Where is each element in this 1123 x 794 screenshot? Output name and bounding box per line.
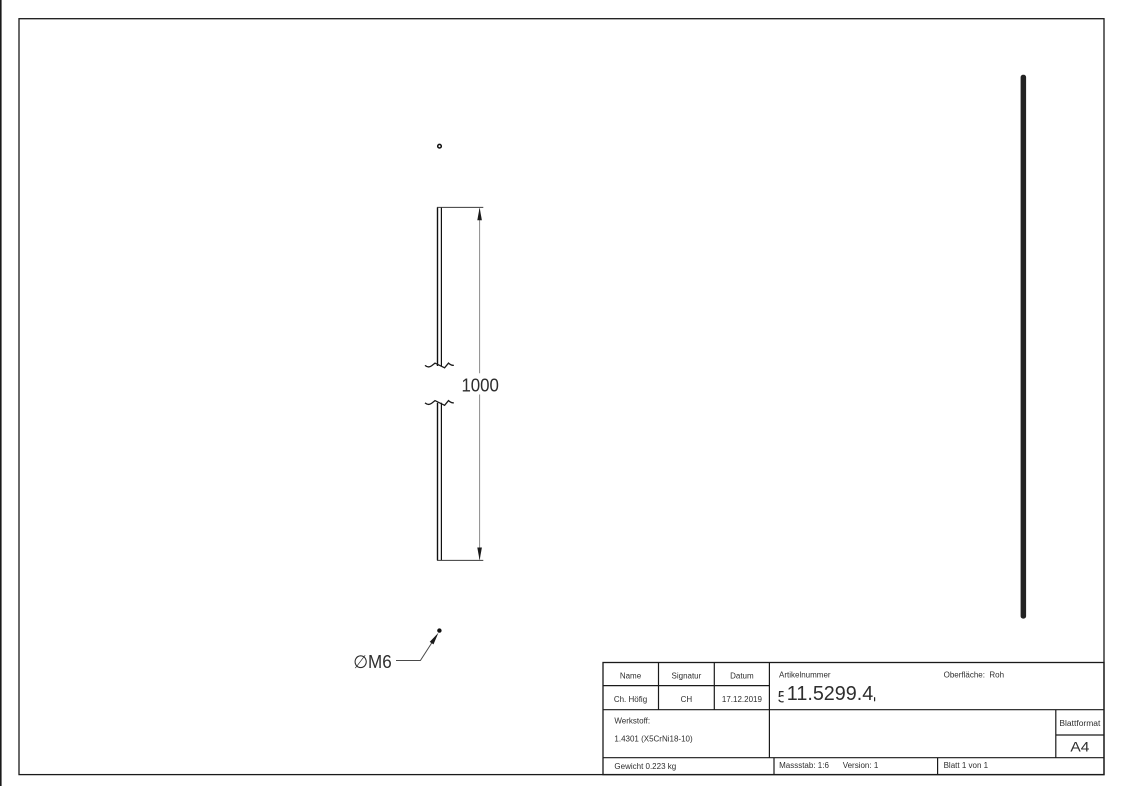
svg-text:11.5299.4: 11.5299.4	[787, 682, 874, 705]
svg-text:1000: 1000	[461, 375, 499, 395]
svg-text:Version: 1: Version: 1	[843, 761, 879, 770]
svg-text:17.12.2019: 17.12.2019	[722, 695, 763, 704]
svg-text:Ch. Höfig: Ch. Höfig	[614, 695, 647, 704]
svg-text:A4: A4	[1070, 739, 1089, 755]
svg-text:Name: Name	[620, 672, 642, 681]
svg-text:Signatur: Signatur	[672, 672, 702, 681]
svg-text:Werkstoff:: Werkstoff:	[614, 716, 650, 725]
svg-text:Oberfläche: Roh: Oberfläche: Roh	[944, 671, 1004, 680]
svg-text:Artikelnummer: Artikelnummer	[779, 671, 831, 680]
svg-text:∅M6: ∅M6	[353, 652, 392, 672]
svg-text:Blatt 1 von 1: Blatt 1 von 1	[944, 761, 989, 770]
svg-text:Gewicht 0.223 kg: Gewicht 0.223 kg	[614, 762, 676, 771]
svg-text:1.4301 (X5CrNi18-10): 1.4301 (X5CrNi18-10)	[614, 735, 693, 744]
svg-text:Blattformat: Blattformat	[1059, 719, 1101, 728]
svg-text:CH: CH	[681, 695, 693, 704]
svg-text:Massstab: 1:6: Massstab: 1:6	[779, 761, 829, 770]
svg-text:Datum: Datum	[730, 672, 754, 681]
